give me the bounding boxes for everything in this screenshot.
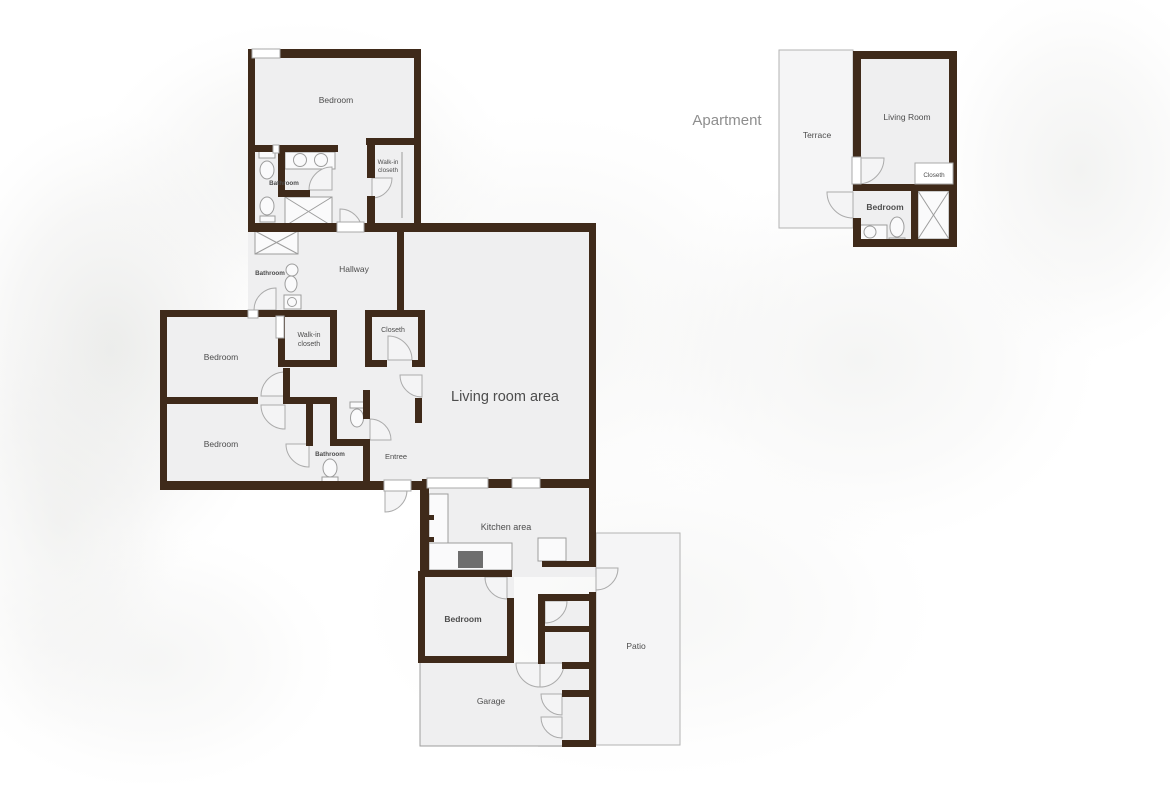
window	[427, 478, 488, 488]
floorplan-canvas: Bedroom Bathroom Walk-in closeth Bathroo…	[0, 0, 1170, 785]
label-bedroom-bottom: Bedroom	[444, 614, 482, 624]
label-patio: Patio	[626, 641, 646, 651]
label-terrace: Terrace	[803, 130, 832, 140]
door-slab	[276, 316, 284, 338]
garage-floor	[420, 663, 596, 746]
toilet-icon	[322, 459, 338, 482]
window	[252, 49, 280, 58]
label-apt-bedroom: Bedroom	[866, 202, 904, 212]
shower-icon	[285, 197, 332, 226]
label-hallway: Hallway	[339, 264, 370, 274]
label-entree: Entree	[385, 452, 407, 461]
sink-vanity-icon	[859, 225, 887, 240]
label-bathroom-small: Bathroom	[255, 270, 285, 277]
label-bathroom-main: Bathroom	[269, 180, 299, 187]
patio-outline	[596, 533, 680, 745]
label-walkin-top-2: closeth	[378, 167, 398, 174]
door-slab	[384, 480, 411, 491]
linen-closet-icon	[255, 231, 298, 254]
label-garage: Garage	[477, 696, 506, 706]
label-living-room: Living room area	[451, 389, 560, 405]
toilet-icon	[259, 151, 275, 179]
floorplan-page: Bedroom Bathroom Walk-in closeth Bathroo…	[0, 0, 1170, 785]
stove-icon	[458, 551, 483, 568]
door-slab	[248, 310, 258, 318]
sink-vanity-icon	[285, 152, 335, 169]
door-slab	[852, 157, 861, 184]
window	[512, 478, 540, 488]
garage-outline	[420, 663, 596, 746]
label-walkin-mid-1: Walk-in	[297, 332, 320, 339]
label-kitchen: Kitchen area	[481, 522, 532, 532]
toilet-icon	[260, 197, 275, 222]
washbasin-icon	[284, 295, 301, 309]
label-walkin-top-1: Walk-in	[378, 159, 399, 166]
sink-icon	[286, 264, 298, 276]
label-bedroom-top: Bedroom	[319, 95, 354, 105]
label-walkin-mid-2: closeth	[298, 341, 320, 348]
label-bedroom-left-upper: Bedroom	[204, 352, 239, 362]
toilet-icon	[350, 402, 364, 427]
label-closeth-hall: Closeth	[381, 327, 405, 334]
label-bathroom-entree: Bathroom	[315, 451, 345, 458]
label-apt-closeth: Closeth	[923, 172, 945, 179]
toilet-icon	[285, 276, 297, 292]
label-apartment-title: Apartment	[692, 112, 762, 129]
door-slab	[337, 222, 364, 232]
label-bedroom-left-lower: Bedroom	[204, 439, 239, 449]
door-slab	[273, 145, 279, 153]
label-apt-living-room: Living Room	[883, 112, 930, 122]
shower-icon	[918, 191, 949, 239]
